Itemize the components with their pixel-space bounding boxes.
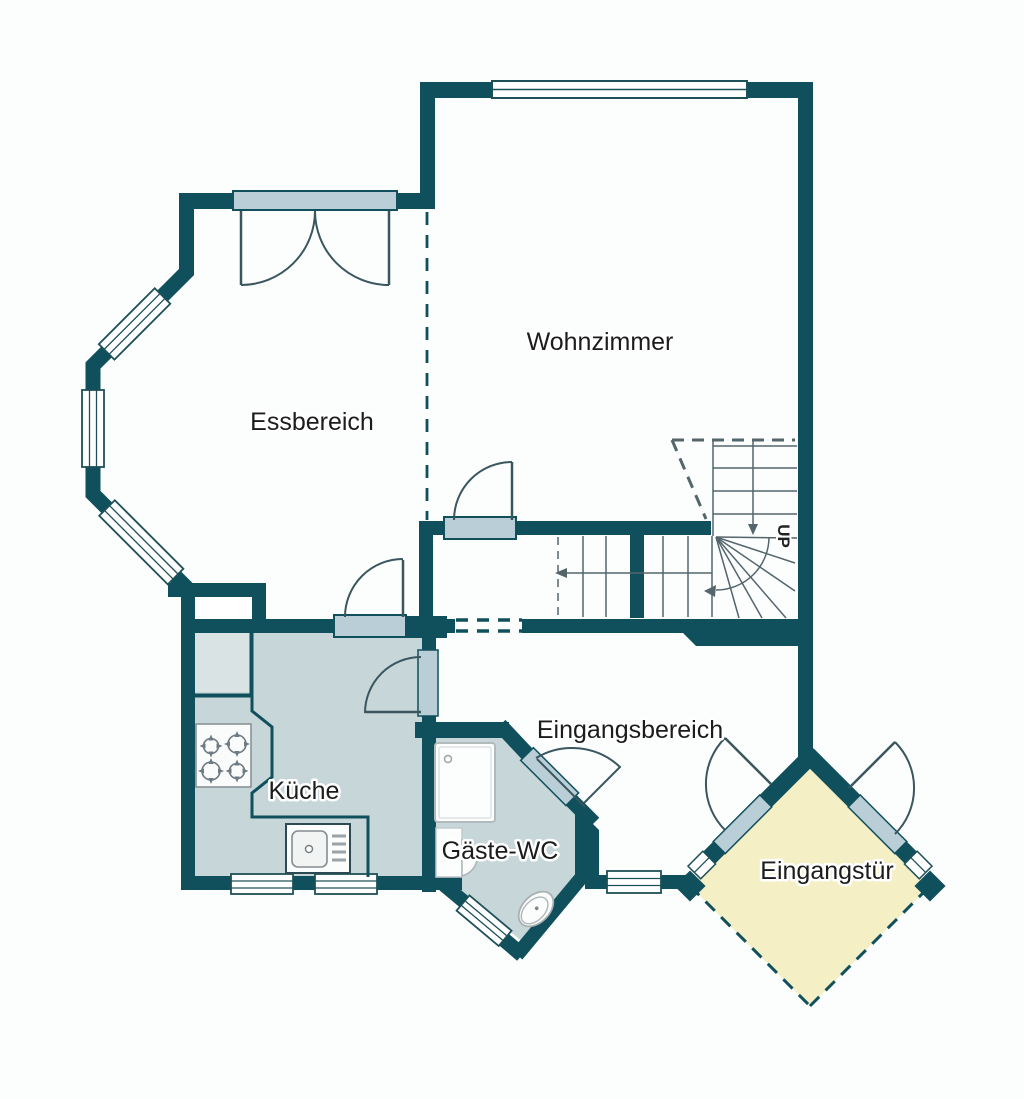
svg-text:Eingangstür: Eingangstür [760, 857, 893, 885]
svg-text:Gäste-WC: Gäste-WC [442, 837, 559, 865]
svg-text:Wohnzimmer: Wohnzimmer [527, 328, 674, 356]
svg-text:Küche: Küche [269, 777, 340, 805]
svg-text:UP: UP [774, 524, 793, 548]
svg-text:Eingangsbereich: Eingangsbereich [537, 716, 723, 744]
svg-text:Essbereich: Essbereich [250, 408, 374, 436]
